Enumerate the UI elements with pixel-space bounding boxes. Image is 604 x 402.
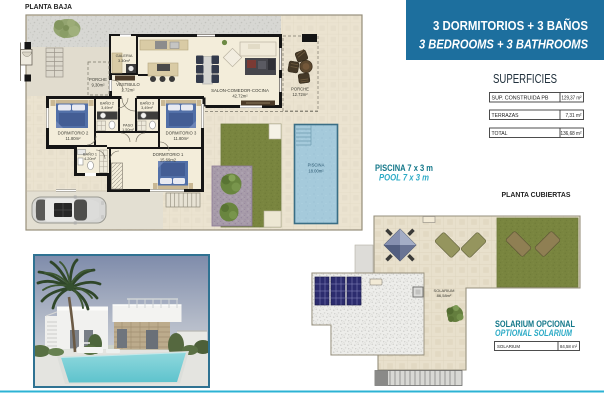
svg-text:9,30m²: 9,30m² [91, 83, 105, 88]
svg-text:SALON-COMEDOR-COCINA: SALON-COMEDOR-COCINA [211, 88, 269, 93]
svg-text:SOLARIUM: SOLARIUM [497, 344, 520, 349]
svg-text:POOL 7 x 3 m: POOL 7 x 3 m [379, 173, 429, 183]
svg-text:SUPERFICIES: SUPERFICIES [493, 72, 557, 86]
svg-text:84,58 m²: 84,58 m² [560, 344, 577, 349]
svg-text:3 DORMITORIOS + 3 BAÑOS: 3 DORMITORIOS + 3 BAÑOS [433, 18, 588, 33]
svg-text:TERRAZAS: TERRAZAS [492, 113, 519, 119]
svg-text:BAÑO 2: BAÑO 2 [100, 101, 114, 106]
svg-text:3 BEDROOMS + 3 BATHROOMS: 3 BEDROOMS + 3 BATHROOMS [419, 37, 588, 52]
svg-text:BAÑO 3: BAÑO 3 [140, 101, 154, 106]
svg-text:3.30m²: 3.30m² [118, 58, 131, 63]
svg-text:1.50m²: 1.50m² [122, 128, 135, 132]
svg-text:DORMITORIO 2: DORMITORIO 2 [58, 131, 89, 136]
svg-text:TOTAL: TOTAL [492, 131, 508, 137]
svg-text:PISCINA: PISCINA [308, 163, 325, 168]
svg-text:PORCHE: PORCHE [291, 87, 309, 92]
svg-text:VESTIBULO: VESTIBULO [116, 82, 140, 87]
svg-text:PASO: PASO [123, 124, 133, 128]
svg-text:15.69m2: 15.69m2 [160, 158, 177, 163]
svg-text:11.80m²: 11.80m² [65, 136, 81, 141]
svg-text:12.72m²: 12.72m² [292, 92, 308, 97]
svg-text:3,49m²: 3,49m² [101, 106, 114, 110]
svg-text:3,49m²: 3,49m² [141, 106, 154, 110]
svg-text:129,37 m²: 129,37 m² [562, 96, 582, 102]
svg-text:4.20m²: 4.20m² [84, 157, 97, 161]
svg-text:2.72m²: 2.72m² [121, 88, 135, 93]
svg-text:SUP. CONSTRUIDA PB: SUP. CONSTRUIDA PB [492, 96, 549, 102]
svg-text:DORMITORIO 3: DORMITORIO 3 [166, 131, 197, 136]
svg-text:42.72m²: 42.72m² [232, 94, 248, 99]
svg-text:86,58m²: 86,58m² [437, 293, 452, 298]
svg-text:DORMITORIO 1: DORMITORIO 1 [153, 152, 184, 157]
svg-text:11.80m²: 11.80m² [173, 136, 189, 141]
svg-text:BAÑO 1: BAÑO 1 [83, 152, 97, 157]
svg-text:PLANTA CUBIERTAS: PLANTA CUBIERTAS [502, 190, 571, 199]
svg-text:PLANTA BAJA: PLANTA BAJA [25, 2, 72, 11]
svg-text:PORCHE: PORCHE [89, 77, 107, 82]
svg-text:PISCINA 7 x 3 m: PISCINA 7 x 3 m [375, 163, 433, 173]
svg-text:136,68 m²: 136,68 m² [561, 131, 582, 137]
svg-text:7,31 m²: 7,31 m² [566, 113, 582, 119]
svg-text:OPTIONAL SOLARIUM: OPTIONAL SOLARIUM [495, 328, 573, 338]
svg-text:18.00m²: 18.00m² [308, 169, 324, 174]
